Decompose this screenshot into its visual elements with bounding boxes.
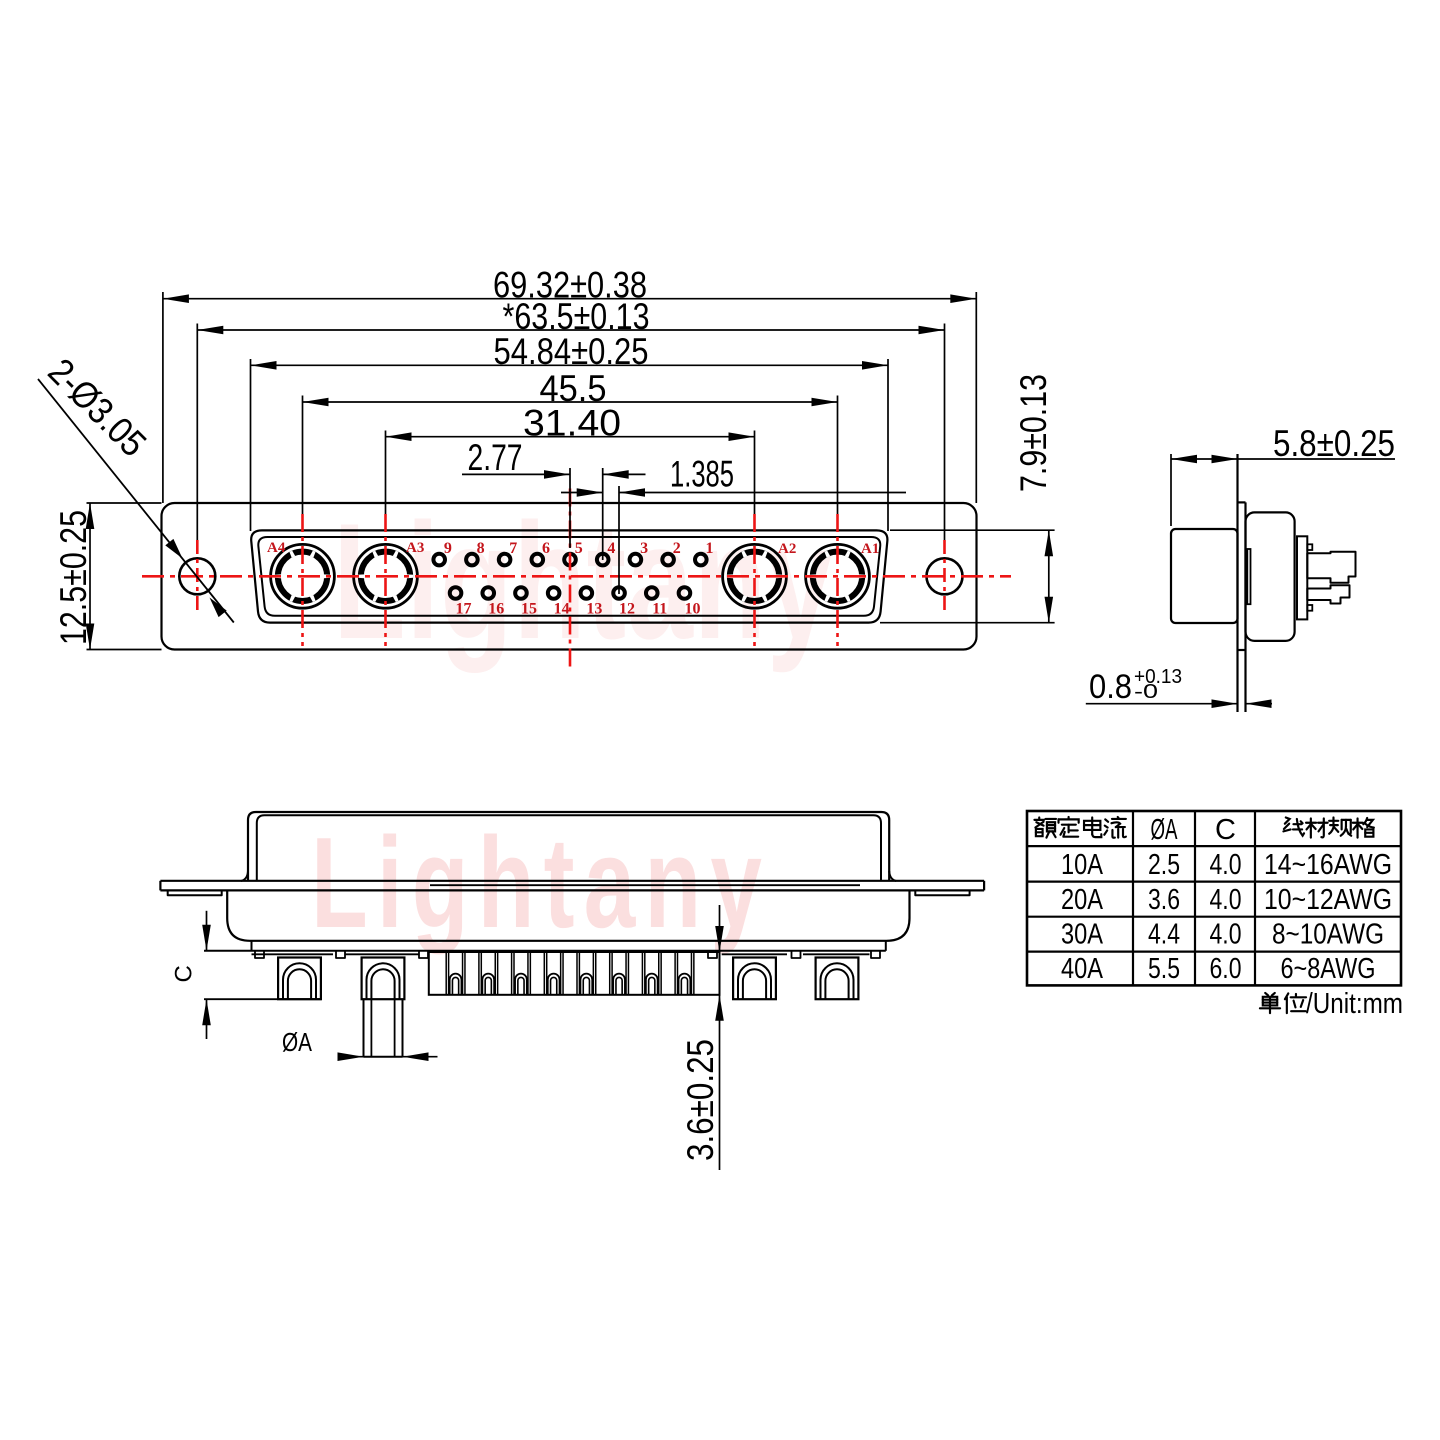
svg-text:A2: A2 bbox=[778, 541, 796, 557]
svg-text:12.5±0.25: 12.5±0.25 bbox=[53, 510, 94, 645]
svg-text:3.6±0.25: 3.6±0.25 bbox=[680, 1039, 721, 1161]
svg-text:-0: -0 bbox=[1134, 681, 1158, 703]
svg-text:4.0: 4.0 bbox=[1210, 849, 1242, 881]
svg-text:2.5: 2.5 bbox=[1148, 849, 1180, 881]
svg-text:C: C bbox=[171, 965, 198, 982]
svg-text:7.9±0.13: 7.9±0.13 bbox=[1013, 374, 1054, 492]
svg-text:14: 14 bbox=[554, 601, 570, 618]
svg-text:9: 9 bbox=[444, 540, 452, 557]
svg-text:10A: 10A bbox=[1061, 849, 1104, 881]
svg-text:7: 7 bbox=[509, 540, 517, 557]
svg-text:16: 16 bbox=[488, 601, 504, 618]
svg-text:20A: 20A bbox=[1061, 884, 1104, 916]
svg-text:8~10AWG: 8~10AWG bbox=[1272, 919, 1384, 951]
svg-text:A3: A3 bbox=[406, 540, 424, 556]
svg-text:12: 12 bbox=[619, 601, 635, 618]
svg-text:8: 8 bbox=[477, 540, 485, 557]
svg-text:A1: A1 bbox=[861, 541, 879, 557]
svg-text:5.5: 5.5 bbox=[1148, 953, 1180, 985]
svg-text:14~16AWG: 14~16AWG bbox=[1264, 849, 1392, 881]
svg-text:1: 1 bbox=[706, 540, 714, 557]
svg-text:40A: 40A bbox=[1061, 953, 1104, 985]
svg-text:13: 13 bbox=[586, 601, 602, 618]
svg-text:31.40: 31.40 bbox=[523, 403, 621, 444]
svg-text:2.77: 2.77 bbox=[468, 437, 523, 478]
svg-text:1.385: 1.385 bbox=[670, 454, 734, 495]
svg-text:Lightany: Lightany bbox=[311, 810, 771, 955]
svg-text:A4: A4 bbox=[267, 540, 286, 556]
svg-text:/Unit:mm: /Unit:mm bbox=[1306, 988, 1403, 1020]
svg-text:6: 6 bbox=[542, 540, 550, 557]
svg-text:54.84±0.25: 54.84±0.25 bbox=[494, 331, 649, 372]
svg-text:11: 11 bbox=[652, 601, 667, 618]
svg-text:4.4: 4.4 bbox=[1148, 919, 1180, 951]
svg-text:30A: 30A bbox=[1061, 919, 1104, 951]
svg-text:6.0: 6.0 bbox=[1210, 953, 1242, 985]
svg-text:6~8AWG: 6~8AWG bbox=[1281, 953, 1376, 985]
svg-text:ØA: ØA bbox=[282, 1027, 313, 1057]
svg-text:0.8: 0.8 bbox=[1089, 668, 1132, 706]
svg-text:2: 2 bbox=[673, 540, 681, 557]
svg-text:15: 15 bbox=[521, 601, 537, 618]
svg-text:3.6: 3.6 bbox=[1148, 884, 1180, 916]
svg-text:ØA: ØA bbox=[1151, 814, 1178, 846]
svg-text:4.0: 4.0 bbox=[1210, 919, 1242, 951]
svg-text:4.0: 4.0 bbox=[1210, 884, 1242, 916]
svg-text:3: 3 bbox=[640, 540, 648, 557]
svg-text:C: C bbox=[1215, 814, 1236, 846]
svg-text:5.8±0.25: 5.8±0.25 bbox=[1273, 423, 1395, 464]
svg-text:17: 17 bbox=[456, 601, 472, 618]
svg-text:5: 5 bbox=[575, 540, 583, 557]
svg-text:4: 4 bbox=[607, 540, 615, 557]
svg-text:10~12AWG: 10~12AWG bbox=[1264, 884, 1392, 916]
svg-text:10: 10 bbox=[684, 601, 700, 618]
